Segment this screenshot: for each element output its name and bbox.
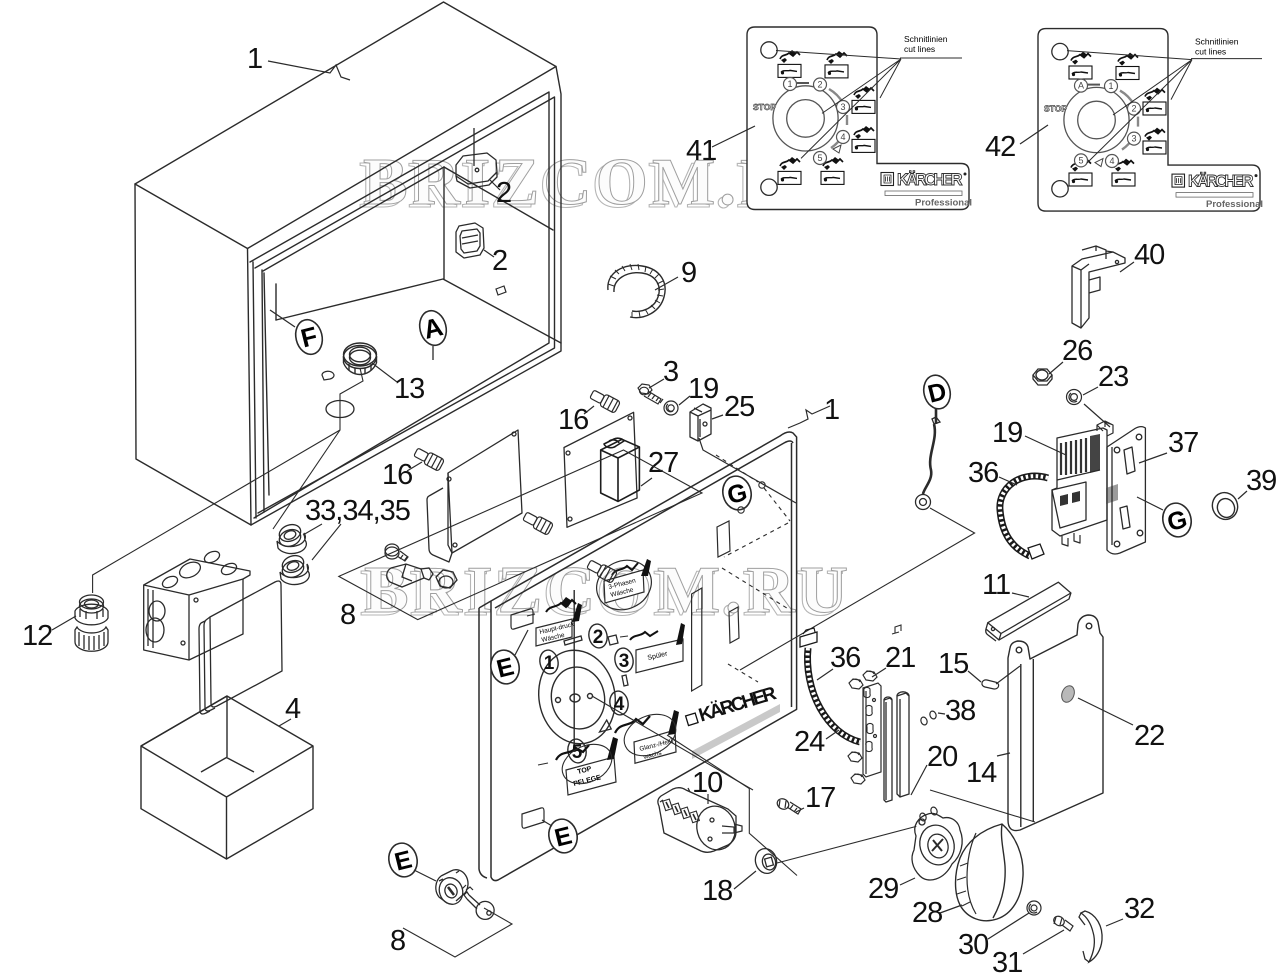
svg-text:8: 8 <box>390 925 405 957</box>
svg-text:28: 28 <box>912 897 942 929</box>
svg-text:1: 1 <box>544 653 555 674</box>
svg-text:2: 2 <box>817 80 822 90</box>
svg-text:17: 17 <box>805 782 835 814</box>
svg-text:13: 13 <box>394 373 424 405</box>
svg-text:33,34,35: 33,34,35 <box>305 495 410 527</box>
svg-text:36: 36 <box>968 457 998 489</box>
svg-text:9: 9 <box>681 257 696 289</box>
svg-text:3: 3 <box>663 356 678 388</box>
svg-text:2: 2 <box>593 627 604 648</box>
svg-text:3: 3 <box>1131 134 1136 144</box>
svg-text:1: 1 <box>824 394 839 426</box>
svg-text:39: 39 <box>1246 465 1276 497</box>
svg-text:5: 5 <box>1078 155 1083 165</box>
svg-text:4: 4 <box>840 132 845 142</box>
svg-text:36: 36 <box>830 642 860 674</box>
svg-text:20: 20 <box>927 741 957 773</box>
svg-text:38: 38 <box>945 695 975 727</box>
svg-text:A: A <box>1078 81 1084 91</box>
svg-text:14: 14 <box>966 757 997 789</box>
svg-text:22: 22 <box>1134 720 1164 752</box>
svg-text:5: 5 <box>572 742 583 763</box>
svg-text:30: 30 <box>958 929 988 961</box>
svg-text:Schnitlinien: Schnitlinien <box>904 34 948 44</box>
svg-text:4: 4 <box>285 693 301 725</box>
svg-text:21: 21 <box>885 642 915 674</box>
svg-text:4: 4 <box>1109 156 1114 166</box>
svg-text:2: 2 <box>492 245 507 277</box>
svg-text:11: 11 <box>982 569 1010 601</box>
svg-text:40: 40 <box>1134 239 1164 271</box>
svg-text:5: 5 <box>817 153 822 163</box>
svg-text:16: 16 <box>558 404 588 436</box>
svg-text:23: 23 <box>1098 361 1128 393</box>
svg-text:19: 19 <box>688 373 718 405</box>
svg-text:31: 31 <box>992 947 1022 979</box>
svg-text:2: 2 <box>496 177 511 209</box>
svg-text:26: 26 <box>1062 335 1092 367</box>
svg-text:8: 8 <box>340 599 355 631</box>
svg-text:12: 12 <box>22 620 52 652</box>
svg-text:1: 1 <box>787 79 792 89</box>
svg-text:42: 42 <box>985 131 1015 163</box>
svg-text:27: 27 <box>648 447 678 479</box>
svg-text:3: 3 <box>619 651 630 672</box>
svg-text:29: 29 <box>868 873 898 905</box>
svg-text:37: 37 <box>1168 427 1198 459</box>
svg-text:32: 32 <box>1124 893 1154 925</box>
svg-text:cut lines: cut lines <box>904 44 935 54</box>
svg-text:3: 3 <box>840 102 845 112</box>
svg-text:15: 15 <box>938 648 968 680</box>
svg-text:Schnitlinien: Schnitlinien <box>1195 37 1239 47</box>
svg-text:2: 2 <box>1131 104 1136 114</box>
svg-text:18: 18 <box>702 875 732 907</box>
svg-text:cut lines: cut lines <box>1195 47 1226 57</box>
svg-text:1: 1 <box>247 43 262 75</box>
svg-text:16: 16 <box>382 459 412 491</box>
svg-text:24: 24 <box>794 726 825 758</box>
svg-text:25: 25 <box>724 391 754 423</box>
svg-text:19: 19 <box>992 417 1022 449</box>
svg-text:10: 10 <box>692 767 722 799</box>
svg-text:1: 1 <box>1108 81 1113 91</box>
svg-text:41: 41 <box>686 135 716 167</box>
